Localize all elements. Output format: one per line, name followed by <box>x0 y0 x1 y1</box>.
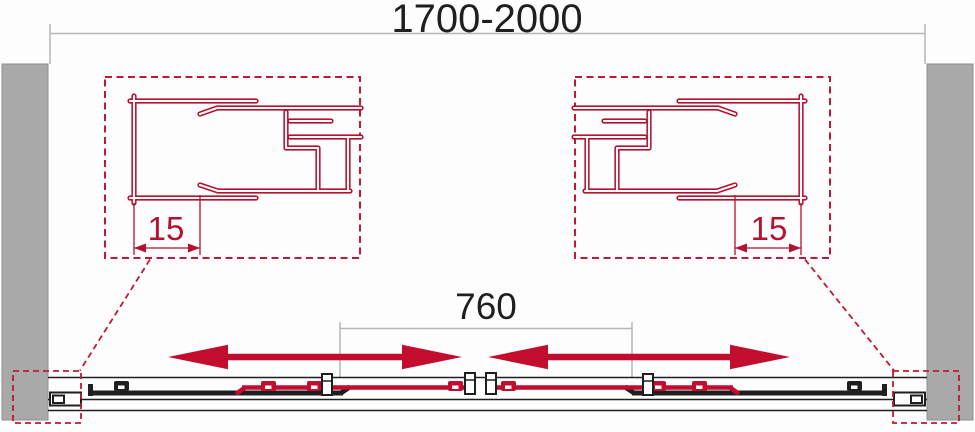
roller-clip <box>114 381 129 391</box>
guide-bracket <box>486 373 496 394</box>
opening-width-dimension-lines <box>340 322 632 378</box>
roller-clip <box>847 381 862 391</box>
roller-clip <box>261 381 276 391</box>
guide-bracket <box>643 374 653 395</box>
left-detail-adjustment-label: 15 <box>148 210 185 247</box>
track-assembly <box>48 373 927 411</box>
slide-arrow-right <box>488 345 790 369</box>
diagram-canvas: 1700-2000 760 <box>0 0 975 432</box>
guide-bracket <box>322 374 332 395</box>
roller-clip <box>448 381 463 391</box>
roller-clip <box>307 381 322 391</box>
right-detail-adjustment-label: 15 <box>751 210 788 247</box>
slide-arrow-left <box>168 345 462 369</box>
shower-door-dimension-diagram: 1700-2000 760 <box>0 0 975 432</box>
profile-cross-section-right <box>574 96 805 203</box>
opening-width-dimension-label: 760 <box>455 286 517 327</box>
profile-cross-section-left <box>130 96 361 203</box>
adjustment-dimension-right: 15 <box>735 195 801 255</box>
right-profile-detail: 15 <box>574 77 830 258</box>
left-profile-detail: 15 <box>105 77 361 258</box>
wall-fitting-right <box>894 393 925 406</box>
wall-fitting-left <box>50 393 81 406</box>
wall-left <box>2 64 48 420</box>
guide-bracket <box>465 373 475 394</box>
wall-right <box>927 64 973 420</box>
detail-border-right <box>575 77 830 258</box>
detail-border-left <box>105 77 360 258</box>
callout-leader-left <box>80 260 150 371</box>
adjustment-dimension-left: 15 <box>134 195 200 255</box>
callout-leader-right <box>805 260 894 371</box>
overall-width-dimension-label: 1700-2000 <box>391 0 582 41</box>
roller-clip <box>501 381 516 391</box>
roller-clip <box>692 381 707 391</box>
